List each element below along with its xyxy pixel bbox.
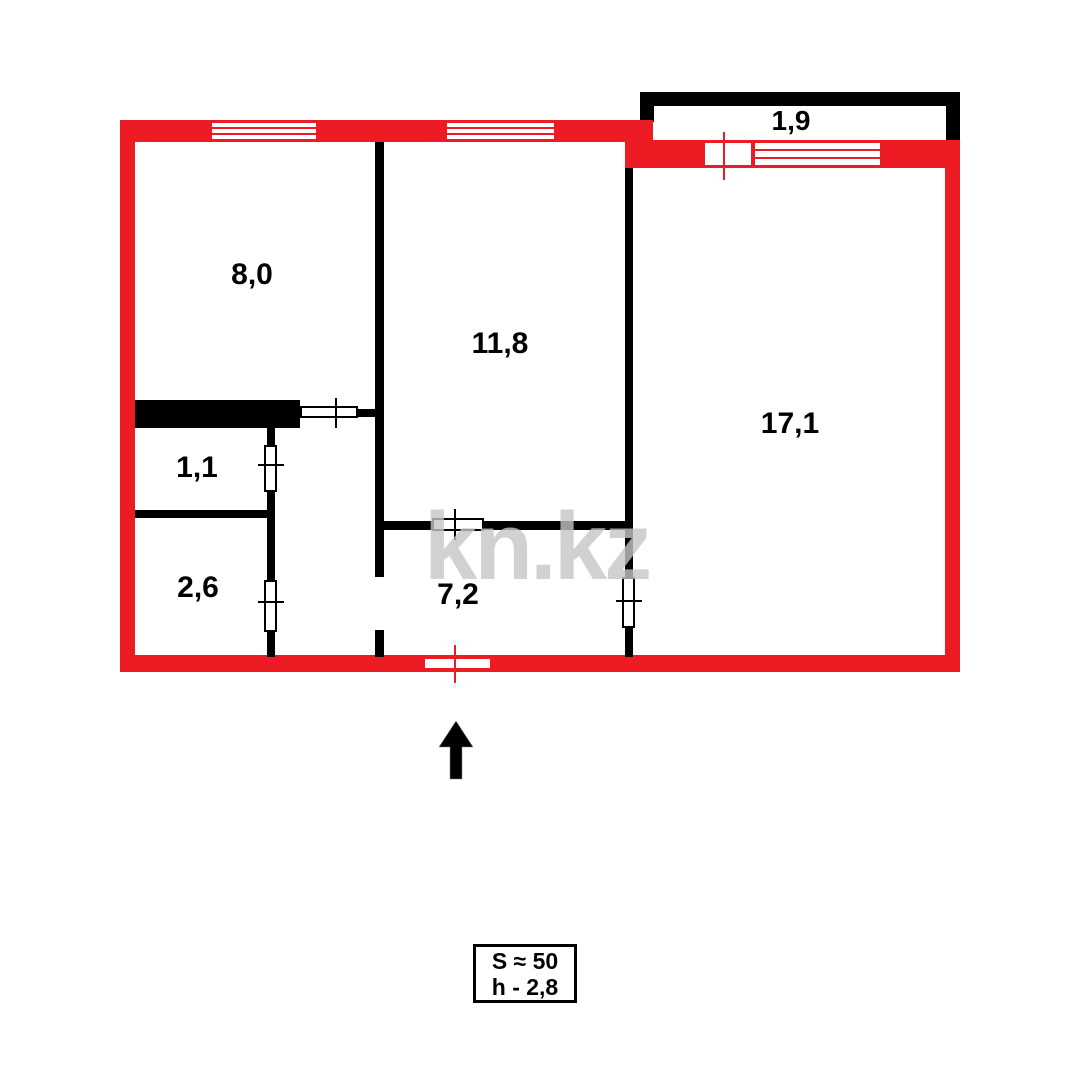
inner-wall-h1 [135,510,275,518]
outer-wall-right [945,140,960,672]
door-room-1-1 [264,445,277,492]
inner-wall-v1-lower [375,630,384,657]
window-balcony [753,141,882,167]
room-label-balcony: 1,9 [772,105,811,137]
inner-wall-v0-a [267,428,275,445]
window-pane-line [447,133,554,135]
inner-wall-door8-segment [358,409,375,417]
floor-plan-canvas: 8,0 11,8 17,1 1,1 2,6 7,2 1,9 S ≈ 50 h -… [0,0,1080,1080]
window-pane-line [212,133,316,135]
window-pane-line [447,127,554,129]
door-room-17-1 [622,577,635,628]
door-room-2-6 [264,580,277,632]
door-room-1-1-tick [258,464,284,466]
room-label-11-8: 11,8 [472,327,529,361]
window-pane-line [212,127,316,129]
outer-wall-top [120,120,653,142]
outer-wall-left [120,120,135,672]
inner-wall-v0-b [267,492,275,580]
room-label-8-0: 8,0 [231,258,273,292]
north-arrow-icon [437,719,475,781]
window-room-8-0 [210,121,318,141]
inner-wall-v0-c [267,632,275,657]
door-room-17-1-tick [616,600,642,602]
inner-wall-v2-lower [625,628,633,657]
inner-wall-h2-right [484,521,632,530]
balcony-wall-top [640,92,960,106]
balcony-wall-left [640,92,654,122]
door-room-2-6-tick [258,601,284,603]
door-balcony [703,141,753,167]
room-label-2-6: 2,6 [177,571,219,605]
room-label-17-1: 17,1 [761,407,819,441]
door-room-8-0 [300,406,358,418]
outer-wall-bottom [120,655,960,672]
balcony-wall-right [946,92,960,140]
info-height-line: h - 2,8 [492,974,558,1000]
door-entrance [423,657,492,670]
door-entrance-tick [454,645,456,683]
wardrobe-block [135,400,300,428]
window-pane-line [755,157,880,159]
window-room-11-8 [445,121,556,141]
inner-wall-v1-upper [375,142,384,577]
room-label-1-1: 1,1 [176,451,218,485]
door-room-11-8-tick [454,509,456,540]
info-area-line: S ≈ 50 [492,948,558,974]
inner-wall-v2-upper [625,168,633,577]
info-box: S ≈ 50 h - 2,8 [473,944,577,1003]
door-room-11-8 [432,518,484,531]
inner-wall-h2-left [375,521,432,530]
room-label-7-2: 7,2 [437,578,479,612]
door-room-8-0-tick [335,398,337,428]
window-pane-line [755,149,880,151]
door-balcony-tick [723,132,725,180]
